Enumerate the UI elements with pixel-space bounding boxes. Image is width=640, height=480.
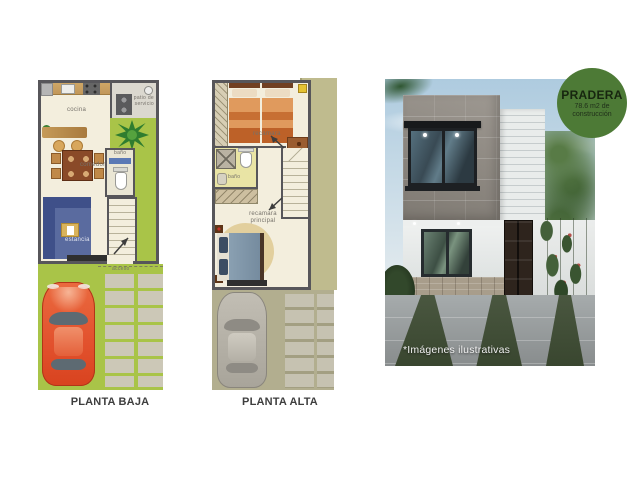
- car-roof: [228, 333, 256, 361]
- soffit-light-icon: [413, 222, 416, 225]
- stairs-arrow-icon: [265, 195, 285, 213]
- chair-icon: [94, 168, 104, 179]
- bed-pillow: [219, 237, 228, 253]
- room-arrow-icon: [267, 133, 287, 151]
- fridge-icon: [41, 83, 53, 96]
- window-sill: [405, 186, 480, 191]
- toilet-icon: [115, 172, 127, 190]
- floor-plan-planta-alta: recamara baño recamara principal: [212, 78, 337, 390]
- bed-headboard: [229, 83, 260, 88]
- disclaimer-text: *Imágenes ilustrativas: [403, 344, 510, 356]
- palm-tree-center: [127, 130, 137, 140]
- label-estancia: estancia: [65, 237, 90, 244]
- car-windshield: [49, 312, 88, 325]
- plan-title-planta-alta: PLANTA ALTA: [205, 396, 355, 408]
- chair-icon: [51, 168, 61, 179]
- badge-title: PRADERA: [561, 88, 622, 102]
- kitchen-sink-icon: [61, 84, 75, 94]
- bed-headboard: [262, 83, 293, 88]
- bed-footboard: [260, 233, 264, 281]
- heater-icon: [298, 84, 307, 93]
- sink-icon: [217, 173, 227, 185]
- ghost-car: [217, 292, 267, 388]
- front-door: [504, 220, 533, 301]
- ground-window: [421, 229, 472, 277]
- bed-master: [217, 233, 264, 281]
- paver-column: [317, 294, 334, 388]
- chair-icon: [51, 153, 61, 164]
- upper-window: [408, 128, 477, 186]
- window-canopy: [404, 121, 481, 128]
- shower-icon: [216, 149, 236, 169]
- paver-column: [285, 294, 314, 388]
- stove-icon: [83, 83, 100, 95]
- breakfast-bar: [42, 127, 87, 138]
- label-acceso: acceso: [112, 267, 130, 273]
- property-dashed-line: [98, 266, 163, 267]
- driveway-ground: acceso: [38, 264, 163, 390]
- pradera-badge: PRADERA 78.6 m2 de construcción: [557, 68, 627, 138]
- ceiling-light-icon: [423, 133, 427, 137]
- badge-area-line2: construcción: [572, 111, 611, 118]
- toilet-icon: [240, 152, 252, 168]
- label-bano: baño: [228, 175, 240, 181]
- bed-pillow: [219, 259, 228, 275]
- window-mullion: [446, 232, 449, 274]
- label-comedor: comedor: [80, 162, 105, 169]
- closet: [215, 83, 228, 146]
- paver-column: [138, 274, 163, 387]
- bathroom-ground: baño: [105, 148, 135, 197]
- siding-facade: [500, 109, 545, 226]
- car-hood: [49, 287, 88, 313]
- service-patio: patio de servicio: [110, 83, 156, 118]
- bed-pillow: [265, 89, 290, 97]
- driveway-upper-ghost: [212, 290, 334, 390]
- bed-cover: [229, 233, 264, 281]
- brochure-page: patio de servicio cocina comedor baño: [0, 0, 640, 480]
- car-windshield: [224, 319, 260, 331]
- tv-console: [227, 280, 267, 286]
- car-roof: [54, 327, 83, 356]
- car-rear-window: [51, 359, 86, 370]
- nightstand-icon: [215, 225, 223, 233]
- label-cocina: cocina: [67, 107, 86, 114]
- entry-arrow-icon: [111, 233, 133, 257]
- plan-title-planta-baja: PLANTA BAJA: [35, 396, 185, 408]
- floor-plan-planta-baja: patio de servicio cocina comedor baño: [38, 80, 164, 392]
- bed-pillow: [232, 89, 257, 97]
- tv-console: [67, 255, 111, 261]
- sofa-back: [43, 197, 91, 208]
- ground-floor-outline: patio de servicio cocina comedor baño: [38, 80, 159, 264]
- upper-floor-outline: recamara baño recamara principal: [212, 80, 311, 290]
- badge-area-line1: 78.6 m2 de: [574, 103, 609, 110]
- laundry-sink-icon: [144, 86, 153, 95]
- climbing-roses: [535, 218, 593, 304]
- car-rear-window: [226, 363, 258, 373]
- label-patio-servicio: patio de servicio: [124, 96, 154, 108]
- soffit-light-icon: [457, 222, 460, 225]
- paver-column: [105, 274, 134, 387]
- ceiling-light-icon: [455, 133, 459, 137]
- red-car: [42, 282, 95, 386]
- bathroom-upper: baño: [215, 148, 258, 189]
- stairs: [281, 148, 308, 219]
- towel-bar: [109, 158, 131, 164]
- label-bano: baño: [114, 151, 126, 157]
- wardrobe: [215, 189, 258, 204]
- window-mullion: [442, 131, 445, 183]
- coffee-table: [61, 223, 79, 237]
